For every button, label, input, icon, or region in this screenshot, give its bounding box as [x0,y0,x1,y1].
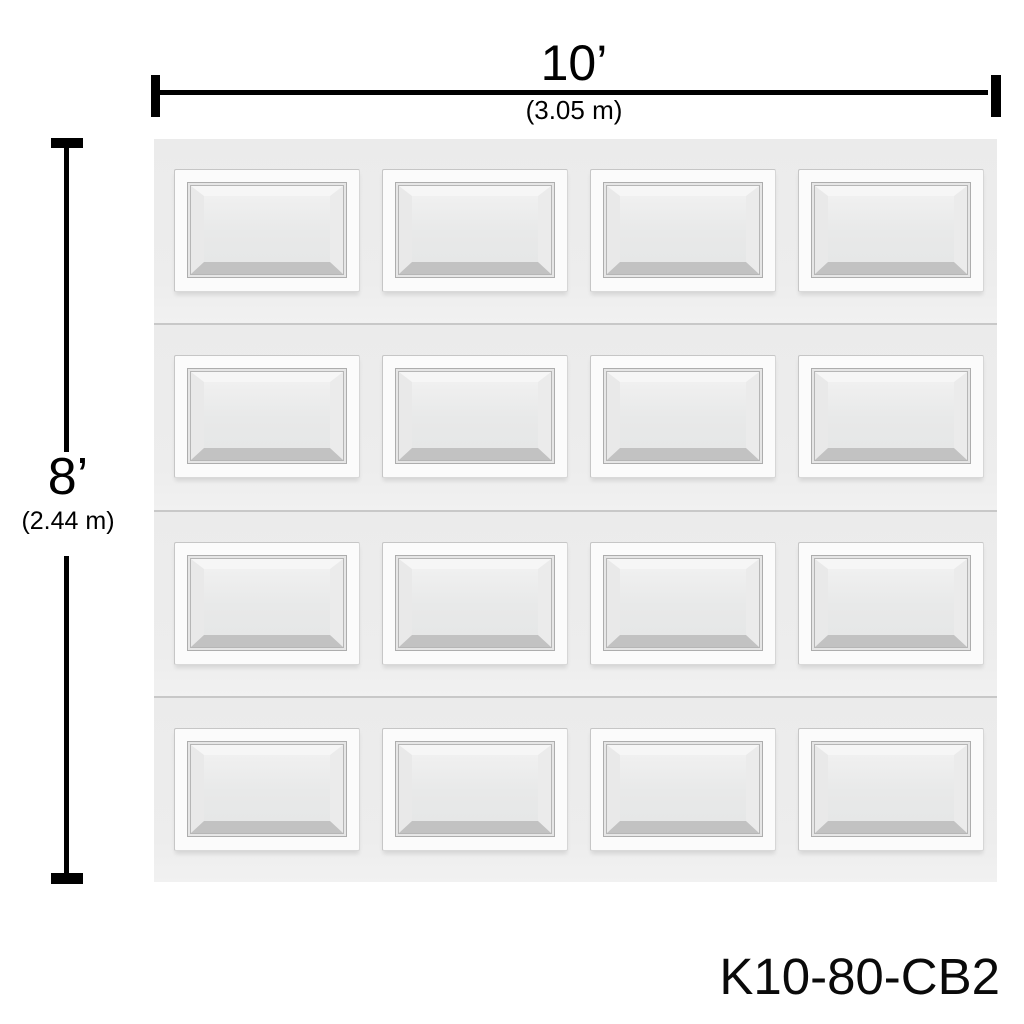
door-panel [798,169,984,292]
door-panel [174,355,360,478]
panel-molding [187,182,347,278]
door-panel [590,169,776,292]
product-code: K10-80-CB2 [0,951,1000,1002]
door-panel [174,169,360,292]
door-panel [382,542,568,665]
width-dimension-metric-label: (3.05 m) [160,97,988,123]
door-panel [798,542,984,665]
width-dimension-label: 10’ [160,38,988,88]
door-panel [590,542,776,665]
door-panel [382,355,568,478]
height-dimension-metric-label: (2.44 m) [8,509,128,534]
panel-molding [811,741,971,837]
panel-molding [395,555,555,651]
panel-molding [603,368,763,464]
panel-molding [603,555,763,651]
door-panel [798,728,984,851]
panel-field [399,186,551,274]
height-dimension-line-upper [64,146,69,452]
panel-field [607,559,759,647]
panel-molding [187,368,347,464]
door-panel [174,542,360,665]
panel-field [191,745,343,833]
door-section [154,325,997,511]
panel-field [815,186,967,274]
panel-field [399,745,551,833]
panel-molding [395,741,555,837]
width-dimension-cap-right [991,75,1001,117]
panel-molding [811,555,971,651]
panel-field [607,745,759,833]
panel-field [399,559,551,647]
panel-field [399,372,551,460]
door-panel [382,728,568,851]
panel-field [815,559,967,647]
height-dimension-cap-bottom [51,873,83,884]
door-section [154,512,997,698]
panel-molding [187,555,347,651]
panel-molding [603,741,763,837]
panel-molding [395,368,555,464]
height-dimension-label: 8’ [8,451,128,503]
panel-molding [395,182,555,278]
panel-molding [811,368,971,464]
panel-field [607,186,759,274]
panel-molding [811,182,971,278]
panel-field [191,559,343,647]
panel-molding [603,182,763,278]
panel-field [191,186,343,274]
door-panel [590,728,776,851]
panel-field [607,372,759,460]
door-panel [382,169,568,292]
panel-field [191,372,343,460]
panel-molding [187,741,347,837]
diagram-canvas: 10’ (3.05 m) 8’ (2.44 m) K10-80-CB2 [0,0,1024,1024]
door-section [154,698,997,882]
door-panel [798,355,984,478]
door-panel [174,728,360,851]
door-panel [590,355,776,478]
garage-door [154,139,997,882]
panel-field [815,372,967,460]
height-dimension-line-lower [64,556,69,873]
panel-field [815,745,967,833]
door-section [154,139,997,325]
width-dimension-cap-left [151,75,160,117]
